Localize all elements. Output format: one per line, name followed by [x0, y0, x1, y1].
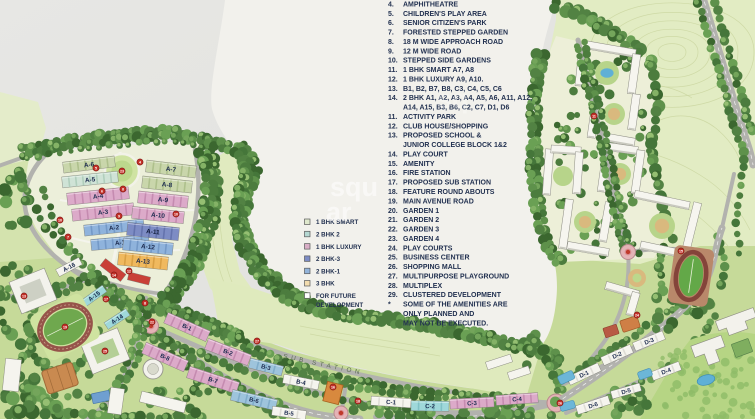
svg-text:27.: 27. — [388, 273, 398, 280]
svg-text:25.: 25. — [388, 255, 398, 262]
svg-text:28.: 28. — [388, 283, 398, 290]
svg-text:A-13: A-13 — [136, 258, 151, 266]
svg-text:26: 26 — [558, 401, 562, 405]
svg-text:GARDEN 3: GARDEN 3 — [403, 227, 439, 234]
svg-text:MAIN AVENUE ROAD: MAIN AVENUE ROAD — [403, 198, 474, 205]
svg-text:4: 4 — [139, 160, 141, 164]
svg-text:SHOPPING MALL: SHOPPING MALL — [403, 264, 462, 271]
svg-text:A-7: A-7 — [165, 166, 177, 174]
svg-text:15.: 15. — [388, 161, 398, 168]
svg-text:10: 10 — [174, 212, 178, 216]
svg-text:13.: 13. — [388, 133, 398, 140]
svg-text:15: 15 — [679, 249, 683, 253]
svg-text:CHILDREN'S PLAY AREA: CHILDREN'S PLAY AREA — [403, 11, 487, 18]
svg-text:19: 19 — [63, 325, 67, 329]
svg-text:FOR FUTURE: FOR FUTURE — [316, 293, 356, 300]
svg-text:18: 18 — [356, 399, 360, 403]
svg-text:sq: sq — [437, 84, 469, 114]
svg-text:PROPOSED SCHOOL &: PROPOSED SCHOOL & — [403, 133, 481, 140]
svg-text:11.: 11. — [388, 114, 397, 121]
svg-text:PLAY COURT: PLAY COURT — [403, 152, 448, 159]
svg-text:12: 12 — [127, 269, 131, 273]
svg-text:1 BHK SMART A7, A8: 1 BHK SMART A7, A8 — [403, 67, 474, 74]
svg-text:PLAY COURTS: PLAY COURTS — [403, 245, 453, 252]
svg-text:DEVELOPMENT: DEVELOPMENT — [316, 302, 363, 309]
svg-text:11: 11 — [592, 114, 596, 118]
svg-text:AMPHITHEATRE: AMPHITHEATRE — [403, 1, 458, 8]
svg-text:8.: 8. — [388, 39, 394, 46]
svg-text:16.: 16. — [388, 170, 398, 177]
svg-text:FEATURE ROUND ABOUTS: FEATURE ROUND ABOUTS — [403, 189, 495, 196]
svg-text:17.: 17. — [388, 180, 398, 187]
svg-text:A-11: A-11 — [146, 228, 161, 236]
svg-text:AMENITY: AMENITY — [403, 161, 435, 168]
svg-text:12 M WIDE ROAD: 12 M WIDE ROAD — [403, 48, 461, 55]
svg-text:26.: 26. — [388, 264, 398, 271]
svg-text:C-4: C-4 — [512, 397, 523, 404]
svg-text:10.: 10. — [388, 58, 398, 65]
svg-text:21.: 21. — [388, 217, 398, 224]
svg-text:BUSINESS CENTER: BUSINESS CENTER — [403, 255, 470, 262]
svg-text:7: 7 — [67, 235, 69, 239]
svg-text:25: 25 — [103, 349, 107, 353]
svg-text:2 BHK-3: 2 BHK-3 — [316, 256, 341, 263]
svg-text:JUNIOR COLLEGE BLOCK 1&2: JUNIOR COLLEGE BLOCK 1&2 — [403, 142, 507, 149]
svg-text:12.: 12. — [388, 123, 398, 130]
svg-text:1 BHK LUXURY: 1 BHK LUXURY — [316, 244, 362, 251]
svg-text:22.: 22. — [388, 227, 398, 234]
svg-text:A-3: A-3 — [98, 209, 109, 217]
svg-text:10: 10 — [58, 218, 62, 222]
svg-text:18 M WIDE APPROACH ROAD: 18 M WIDE APPROACH ROAD — [403, 39, 503, 46]
svg-text:4.: 4. — [388, 1, 394, 8]
svg-text:14.: 14. — [388, 95, 398, 102]
svg-text:5: 5 — [95, 166, 97, 170]
svg-text:2 BHK-1: 2 BHK-1 — [316, 268, 341, 275]
svg-text:ONLY PLANNED AND: ONLY PLANNED AND — [403, 311, 474, 318]
svg-text:ar: ar — [326, 197, 352, 227]
svg-text:A-5: A-5 — [85, 176, 96, 184]
svg-text:13: 13 — [22, 294, 26, 298]
svg-text:14: 14 — [112, 273, 116, 277]
svg-text:SOME OF THE AMENITIES ARE: SOME OF THE AMENITIES ARE — [403, 302, 508, 309]
svg-text:2 BHK 2: 2 BHK 2 — [316, 232, 340, 239]
svg-text:3 BHK: 3 BHK — [316, 281, 335, 288]
svg-text:23.: 23. — [388, 236, 398, 243]
svg-text:A-10: A-10 — [151, 212, 166, 220]
svg-text:12.: 12. — [388, 76, 398, 83]
svg-text:C-2: C-2 — [425, 404, 435, 410]
svg-text:5.: 5. — [388, 11, 394, 18]
svg-text:22: 22 — [150, 320, 154, 324]
svg-text:MAY NOT BE EXECUTED.: MAY NOT BE EXECUTED. — [403, 320, 488, 327]
svg-text:24.: 24. — [388, 245, 398, 252]
svg-text:GARDEN 4: GARDEN 4 — [403, 236, 439, 243]
svg-text:SENIOR CITIZEN'S PARK: SENIOR CITIZEN'S PARK — [403, 20, 487, 27]
svg-text:FIRE STATION: FIRE STATION — [403, 170, 451, 177]
svg-text:C-3: C-3 — [467, 401, 478, 408]
svg-text:9.: 9. — [388, 48, 394, 55]
svg-text:20.: 20. — [388, 208, 398, 215]
svg-text:CLUSTERED DEVELOPMENT: CLUSTERED DEVELOPMENT — [403, 292, 502, 299]
svg-text:16: 16 — [331, 385, 335, 389]
svg-text:24: 24 — [635, 313, 639, 317]
svg-text:A-8: A-8 — [161, 181, 172, 189]
svg-text:9: 9 — [118, 214, 120, 218]
svg-text:ACTIVITY PARK: ACTIVITY PARK — [403, 114, 456, 121]
svg-text:6: 6 — [101, 189, 103, 193]
svg-text:PROPOSED SUB STATION: PROPOSED SUB STATION — [403, 180, 491, 187]
svg-text:A-2: A-2 — [109, 224, 120, 232]
svg-text:MULTIPLEX: MULTIPLEX — [403, 283, 442, 290]
svg-text:FORESTED STEPPED GARDEN: FORESTED STEPPED GARDEN — [403, 30, 508, 37]
svg-text:STEPPED SIDE GARDENS: STEPPED SIDE GARDENS — [403, 58, 491, 65]
svg-text:*: * — [388, 302, 391, 309]
svg-text:27: 27 — [255, 339, 259, 343]
svg-text:18.: 18. — [388, 189, 398, 196]
svg-text:11.: 11. — [388, 67, 397, 74]
svg-text:A-12: A-12 — [141, 243, 156, 251]
svg-text:GARDEN 1: GARDEN 1 — [403, 208, 439, 215]
svg-text:MULTIPURPOSE PLAYGROUND: MULTIPURPOSE PLAYGROUND — [403, 273, 509, 280]
svg-text:29.: 29. — [388, 292, 398, 299]
svg-text:8: 8 — [144, 301, 146, 305]
svg-text:19.: 19. — [388, 198, 398, 205]
svg-text:6.: 6. — [388, 20, 394, 27]
svg-text:13.: 13. — [388, 86, 398, 93]
svg-text:8: 8 — [122, 187, 124, 191]
svg-text:C-1: C-1 — [386, 400, 397, 407]
svg-text:1 BHK LUXURY A9, A10.: 1 BHK LUXURY A9, A10. — [403, 76, 483, 83]
svg-text:GARDEN 2: GARDEN 2 — [403, 217, 439, 224]
svg-text:23: 23 — [120, 169, 124, 173]
svg-text:7.: 7. — [388, 30, 394, 37]
svg-text:14.: 14. — [388, 152, 398, 159]
svg-text:17: 17 — [104, 297, 108, 301]
svg-text:A-9: A-9 — [157, 196, 168, 204]
svg-text:CLUB HOUSE/SHOPPING: CLUB HOUSE/SHOPPING — [403, 123, 489, 130]
